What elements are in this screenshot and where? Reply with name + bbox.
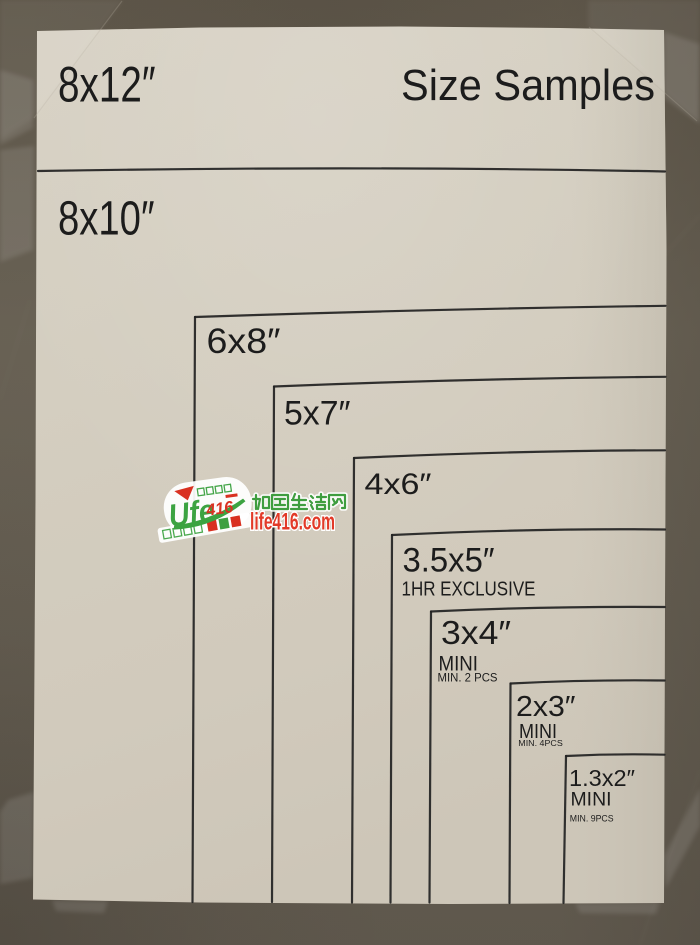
svg-text:8x12″: 8x12″ (58, 57, 156, 113)
svg-text:MIN. 2 PCS: MIN. 2 PCS (438, 670, 498, 684)
svg-text:4x6″: 4x6″ (365, 468, 432, 501)
svg-text:1HR EXCLUSIVE: 1HR EXCLUSIVE (402, 579, 536, 601)
svg-text:MINI: MINI (571, 789, 612, 810)
svg-text:8x10″: 8x10″ (58, 192, 155, 246)
svg-text:3.5x5″: 3.5x5″ (403, 542, 495, 580)
svg-text:1.3x2″: 1.3x2″ (569, 765, 635, 791)
svg-text:2x3″: 2x3″ (516, 691, 576, 723)
svg-text:5x7″: 5x7″ (284, 395, 351, 433)
svg-text:6x8″: 6x8″ (207, 321, 281, 361)
svg-text:3x4″: 3x4″ (441, 615, 511, 652)
svg-text:MIN. 4PCS: MIN. 4PCS (518, 738, 563, 748)
svg-text:life416.com: life416.com (250, 509, 335, 536)
svg-text:Size Samples: Size Samples (401, 62, 655, 110)
svg-text:MIN. 9PCS: MIN. 9PCS (570, 814, 614, 824)
